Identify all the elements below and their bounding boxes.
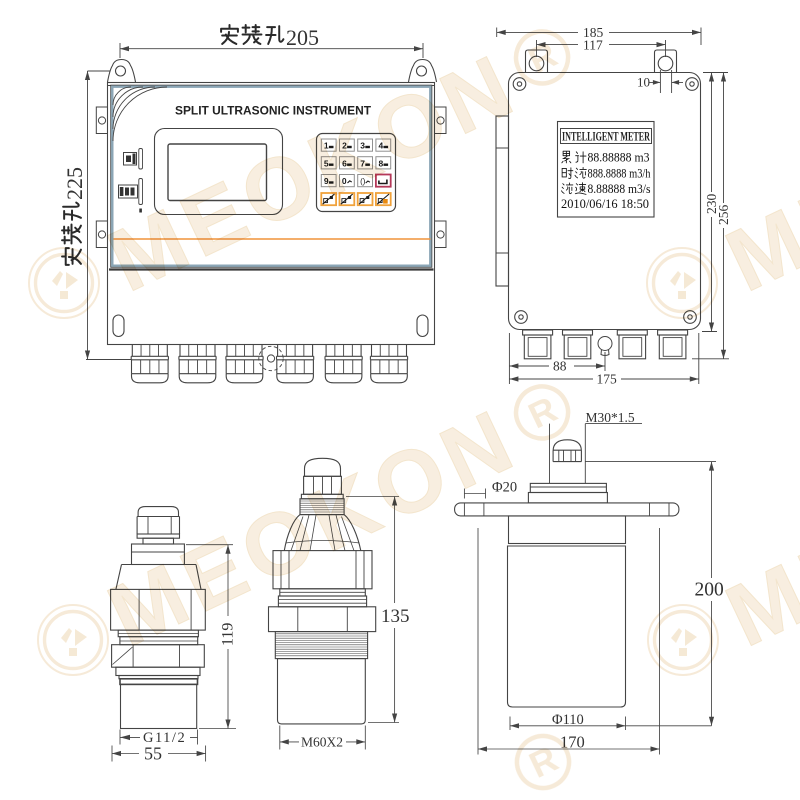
svg-text:117: 117 [583,38,603,53]
svg-text:2010/06/16 18:50: 2010/06/16 18:50 [561,196,649,211]
svg-text:88: 88 [553,359,567,374]
svg-text:MEOKON: MEOKON [94,388,532,665]
svg-text:175: 175 [597,372,618,387]
svg-text:ME: ME [712,158,800,310]
svg-text:135: 135 [381,606,410,627]
svg-text:R: R [523,738,564,786]
svg-text:INTELLIGENT METER: INTELLIGENT METER [562,130,651,144]
svg-text:R: R [522,33,563,81]
svg-text:ME: ME [712,513,800,665]
svg-text:88.88888 m3: 88.88888 m3 [588,150,650,165]
svg-text:M30*1.5: M30*1.5 [586,410,635,425]
svg-text:119: 119 [220,623,237,646]
svg-text:M60X2: M60X2 [301,735,343,750]
svg-text:10: 10 [637,75,650,90]
svg-text:55: 55 [144,744,162,764]
svg-text:888.8888 m3/h: 888.8888 m3/h [588,166,651,181]
svg-text:R: R [522,388,563,436]
svg-text:8.88888 m3/s: 8.88888 m3/s [588,181,651,196]
svg-text:Φ110: Φ110 [552,712,584,728]
svg-text:205: 205 [286,25,319,50]
svg-text:225: 225 [62,167,87,200]
